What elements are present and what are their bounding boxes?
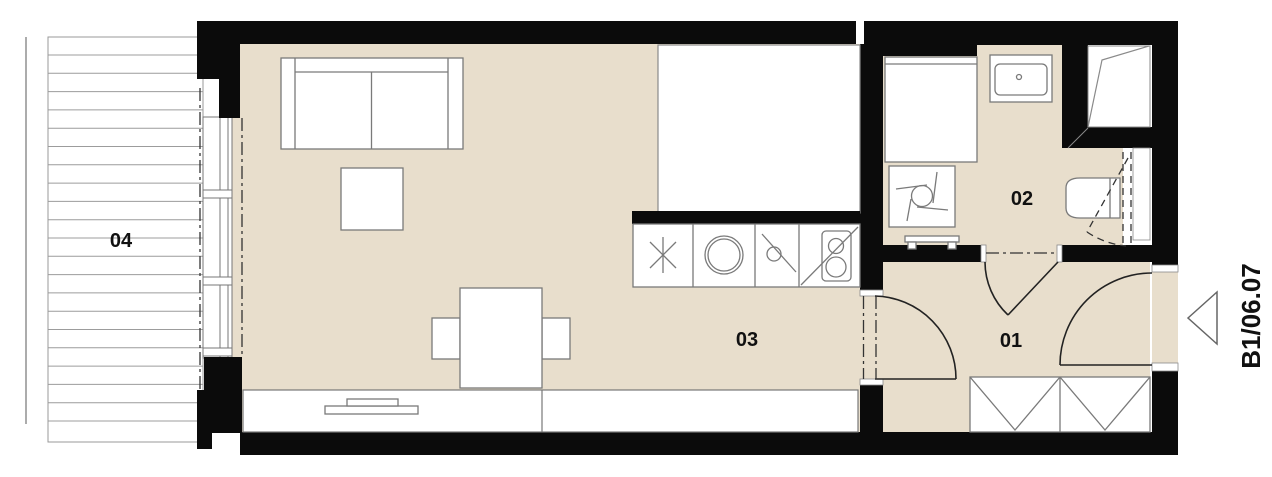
washing-machine-body <box>889 166 955 227</box>
sofa <box>281 58 463 149</box>
shower <box>885 57 977 162</box>
chair <box>432 318 460 359</box>
wall-bottom <box>240 432 1178 455</box>
wall-bathroom <box>883 245 982 262</box>
door-jamb <box>1152 363 1178 371</box>
kitchen <box>632 211 860 287</box>
toilet <box>1066 178 1120 218</box>
wall-top <box>240 21 856 44</box>
bottom-window <box>243 390 858 432</box>
wall <box>883 44 977 56</box>
door-jamb <box>981 245 986 262</box>
window-mullion <box>203 277 232 285</box>
chair <box>542 318 570 359</box>
window-handle <box>347 399 398 406</box>
room-label-02: 02 <box>1011 188 1033 210</box>
entry-arrow-icon <box>1188 292 1217 344</box>
wall-partition <box>860 44 883 290</box>
room-label-04: 04 <box>110 230 133 252</box>
entry-doorway <box>1152 272 1178 363</box>
dining-table <box>460 288 542 388</box>
floor-plan: 04 03 02 01 B1/06.07 <box>0 0 1272 477</box>
window-mullion <box>203 190 232 198</box>
door-jamb <box>1152 265 1178 272</box>
washing-machine <box>889 166 955 227</box>
wall <box>219 21 240 118</box>
wall-bathroom <box>1061 245 1178 262</box>
shaft-box <box>1088 46 1150 127</box>
room-label-01: 01 <box>1000 330 1022 352</box>
window-mullion <box>203 348 232 356</box>
kitchen-wall-nib <box>632 211 860 224</box>
window-handle <box>325 406 418 414</box>
wardrobe <box>970 377 1150 432</box>
radiator-leg <box>948 242 956 249</box>
wall <box>1088 127 1152 148</box>
radiator-leg <box>908 242 916 249</box>
wall-right <box>1152 21 1178 265</box>
bed-outline <box>658 45 860 213</box>
radiator-bar <box>905 236 959 242</box>
toilet-bowl <box>1066 178 1120 218</box>
door-jamb <box>860 290 883 296</box>
unit-marker: B1/06.07 <box>1188 263 1266 369</box>
door-pocket <box>1133 148 1150 240</box>
kitchen-counter <box>633 224 860 287</box>
wall <box>197 390 212 449</box>
unit-label: B1/06.07 <box>1236 263 1266 369</box>
floor-plan-drawing: 04 03 02 01 B1/06.07 <box>0 0 1272 477</box>
shower-tray <box>885 57 977 162</box>
door-jamb <box>1057 245 1062 262</box>
door-jamb <box>860 379 883 385</box>
coffee-table <box>341 168 403 230</box>
bed <box>658 45 860 213</box>
bathroom-sink <box>990 55 1052 102</box>
wall-top <box>864 21 1152 45</box>
room-label-03: 03 <box>736 329 758 351</box>
